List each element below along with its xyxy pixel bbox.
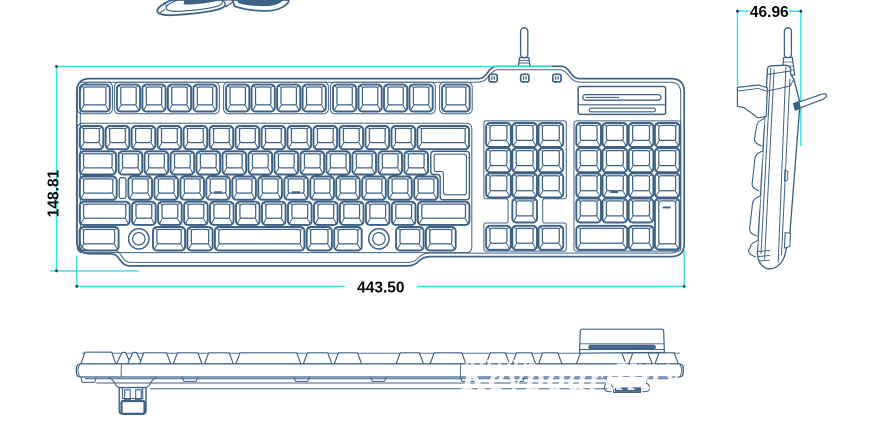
svg-text:443.50: 443.50 (357, 280, 404, 297)
svg-text:46.96: 46.96 (750, 4, 789, 21)
svg-text:148.81: 148.81 (46, 169, 63, 217)
svg-text:type: type (620, 353, 675, 382)
svg-text:enjoy: enjoy (464, 349, 537, 378)
